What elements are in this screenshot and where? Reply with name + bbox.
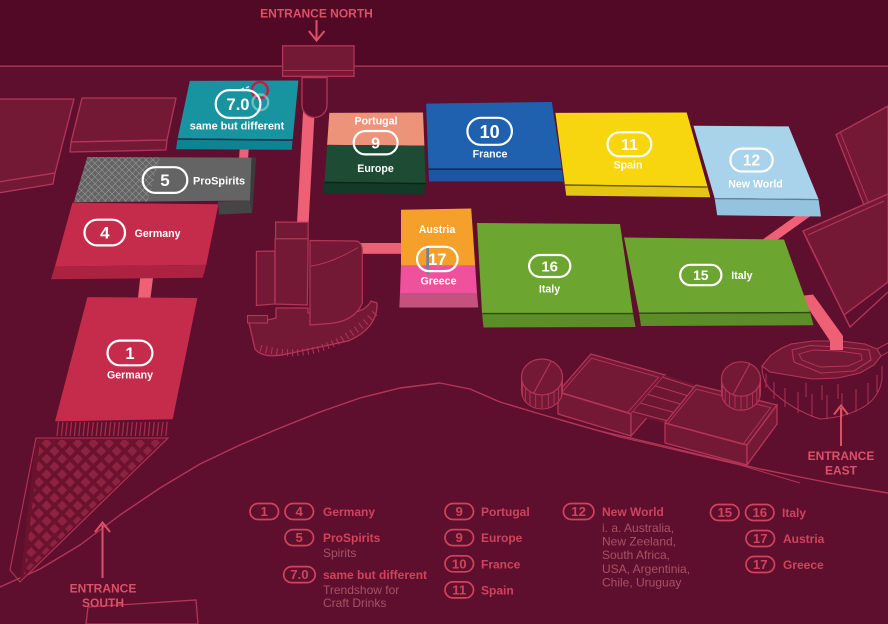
svg-text:15: 15 bbox=[693, 267, 709, 283]
svg-text:17: 17 bbox=[753, 557, 768, 572]
svg-text:9: 9 bbox=[456, 504, 463, 519]
svg-text:Greece: Greece bbox=[421, 275, 457, 287]
svg-text:Italy: Italy bbox=[731, 270, 752, 282]
svg-text:4: 4 bbox=[100, 224, 110, 243]
svg-text:New World: New World bbox=[728, 179, 783, 191]
svg-text:17: 17 bbox=[428, 251, 446, 269]
svg-text:1: 1 bbox=[261, 504, 268, 519]
svg-text:12: 12 bbox=[571, 504, 586, 519]
svg-text:Trendshow for: Trendshow for bbox=[323, 583, 399, 597]
svg-text:Spain: Spain bbox=[614, 159, 643, 171]
svg-text:Germany: Germany bbox=[135, 228, 181, 240]
svg-text:Portugal: Portugal bbox=[481, 505, 530, 519]
svg-text:11: 11 bbox=[621, 137, 638, 154]
svg-text:7.0: 7.0 bbox=[227, 96, 250, 114]
svg-text:ProSpirits: ProSpirits bbox=[323, 531, 381, 545]
svg-text:10: 10 bbox=[480, 122, 500, 142]
svg-text:Craft Drinks: Craft Drinks bbox=[323, 596, 386, 610]
svg-text:France: France bbox=[481, 558, 521, 572]
svg-text:5: 5 bbox=[296, 530, 303, 545]
svg-text:16: 16 bbox=[541, 259, 558, 276]
svg-text:5: 5 bbox=[160, 171, 169, 190]
svg-text:Europe: Europe bbox=[481, 531, 523, 545]
svg-text:1: 1 bbox=[125, 345, 134, 363]
svg-text:16: 16 bbox=[752, 505, 767, 520]
svg-text:France: France bbox=[473, 148, 508, 160]
svg-text:Germany: Germany bbox=[323, 505, 375, 519]
svg-text:11: 11 bbox=[452, 583, 466, 598]
svg-text:Greece: Greece bbox=[783, 558, 824, 572]
svg-text:i. a. Australia,: i. a. Australia, bbox=[602, 521, 674, 535]
svg-text:same but different: same but different bbox=[190, 121, 285, 133]
svg-text:9: 9 bbox=[456, 530, 463, 545]
svg-text:4: 4 bbox=[296, 504, 304, 519]
svg-text:12: 12 bbox=[743, 153, 760, 170]
svg-text:SOUTH: SOUTH bbox=[82, 596, 124, 610]
svg-text:Chile, Uruguay: Chile, Uruguay bbox=[602, 575, 681, 589]
svg-text:Portugal: Portugal bbox=[355, 115, 398, 127]
svg-text:USA, Argentinia,: USA, Argentinia, bbox=[602, 562, 690, 576]
svg-text:Germany: Germany bbox=[107, 370, 153, 382]
svg-text:ProSpirits: ProSpirits bbox=[193, 176, 245, 188]
svg-text:Italy: Italy bbox=[782, 506, 806, 520]
svg-text:Europe: Europe bbox=[357, 163, 394, 175]
svg-text:ENTRANCE: ENTRANCE bbox=[70, 582, 137, 596]
svg-text:15: 15 bbox=[717, 505, 732, 520]
svg-text:9: 9 bbox=[371, 136, 380, 153]
svg-text:ENTRANCE: ENTRANCE bbox=[808, 449, 875, 463]
svg-text:Spain: Spain bbox=[481, 584, 514, 598]
svg-text:17: 17 bbox=[753, 531, 768, 546]
svg-text:Austria: Austria bbox=[419, 224, 456, 236]
svg-text:Spirits: Spirits bbox=[323, 546, 356, 560]
svg-text:ENTRANCE NORTH: ENTRANCE NORTH bbox=[260, 7, 373, 21]
svg-text:New World: New World bbox=[602, 505, 664, 519]
svg-text:Austria: Austria bbox=[783, 532, 825, 546]
svg-text:10: 10 bbox=[452, 556, 467, 571]
svg-text:Italy: Italy bbox=[539, 284, 560, 296]
svg-text:South Africa,: South Africa, bbox=[602, 548, 670, 562]
svg-text:same but different: same but different bbox=[323, 568, 427, 582]
svg-text:EAST: EAST bbox=[825, 464, 858, 478]
svg-text:New Zeeland,: New Zeeland, bbox=[602, 535, 676, 549]
svg-text:7.0: 7.0 bbox=[290, 567, 308, 582]
